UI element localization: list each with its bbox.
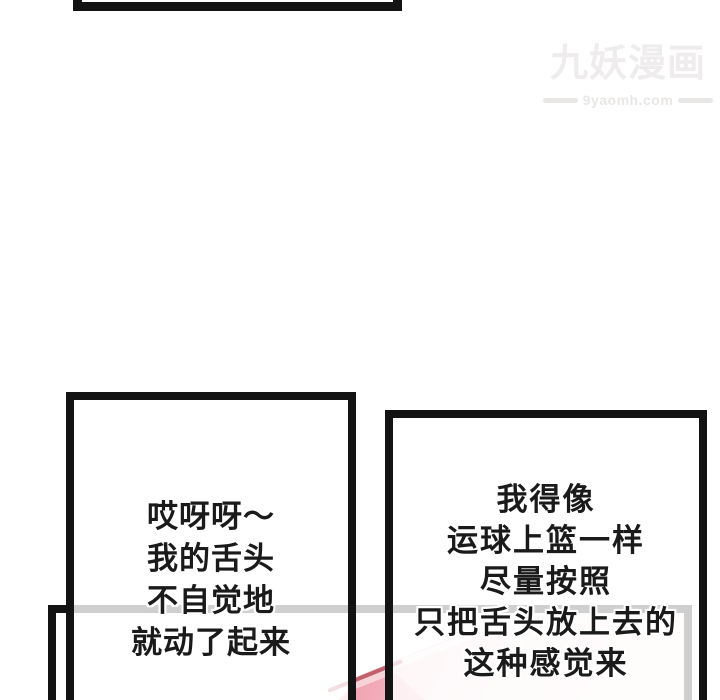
- bubble-text-line: 只把舌头放上去的: [393, 602, 699, 643]
- watermark-site-row: 9yaomh.com: [543, 92, 713, 108]
- bubble-text-line: 就动了起来: [74, 622, 348, 664]
- bubble-text-line: 尽量按照: [393, 561, 699, 602]
- watermark-dash-right: [678, 98, 713, 103]
- speech-bubble-left: 哎呀呀～ 我的舌头 不自觉地 就动了起来: [66, 392, 356, 700]
- bubble-text-line: 运球上篮一样: [393, 520, 699, 561]
- speech-bubble-right: 我得像 运球上篮一样 尽量按照 只把舌头放上去的 这种感觉来: [385, 410, 707, 700]
- site-watermark: 九妖漫画 9yaomh.com: [543, 42, 713, 108]
- bubble-text-line: 我得像: [393, 479, 699, 520]
- bubble-text-line: 不自觉地: [74, 580, 348, 622]
- bubble-text-line: 这种感觉来: [393, 643, 699, 684]
- watermark-logo-text: 九妖漫画: [543, 42, 713, 86]
- bubble-text-line: 哎呀呀～: [74, 496, 348, 538]
- bubble-text-line: 我的舌头: [74, 538, 348, 580]
- watermark-dash-left: [543, 98, 578, 103]
- top-panel-fragment: [73, 0, 402, 11]
- watermark-url-text: 9yaomh.com: [583, 92, 674, 108]
- comic-page: 九妖漫画 9yaomh.com 哎呀呀～ 我的舌头 不自觉地 就动了起来 我得像…: [0, 0, 720, 700]
